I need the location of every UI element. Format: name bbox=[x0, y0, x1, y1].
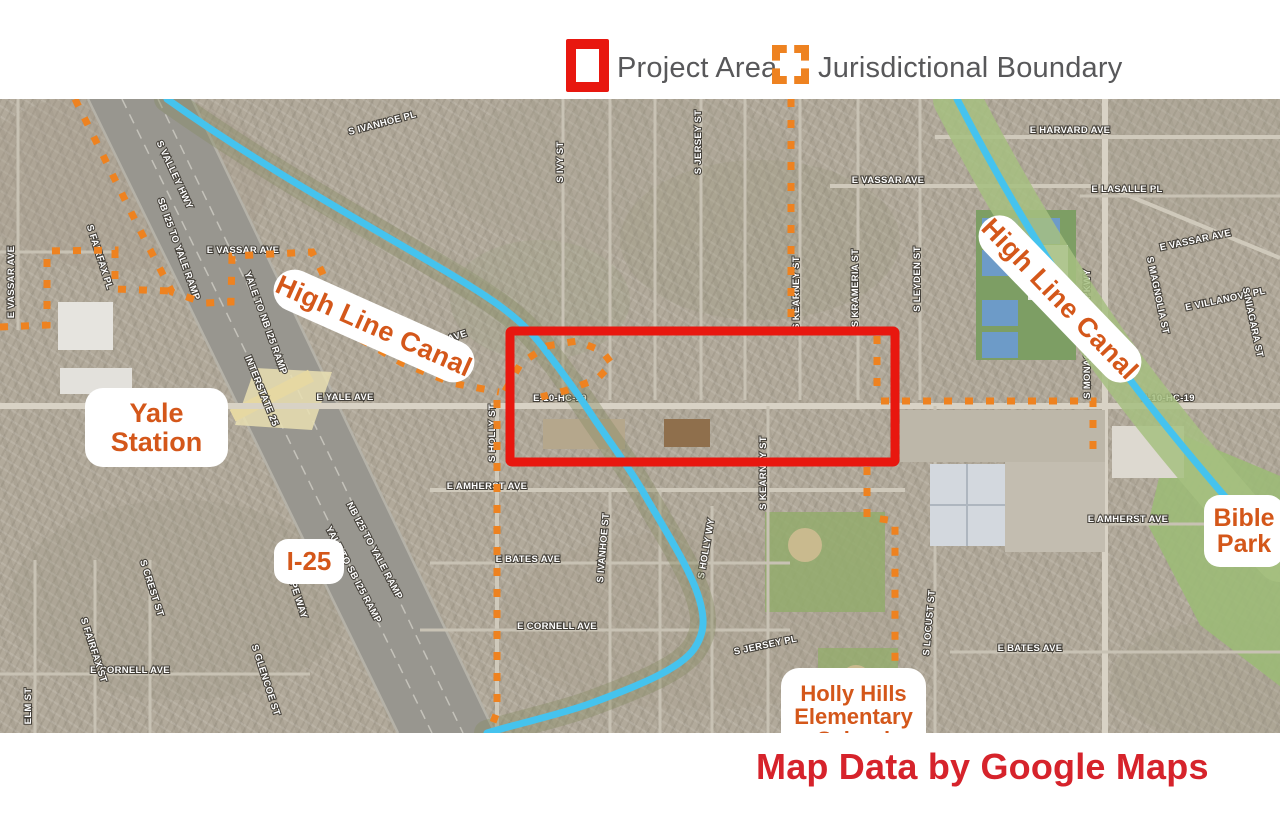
street-label: E LASALLE PL bbox=[1091, 184, 1162, 195]
map-figure: Project Area Jurisdictional Boundary bbox=[0, 0, 1280, 825]
label-text: Holly Hills bbox=[781, 682, 926, 705]
street-label: E CORNELL AVE bbox=[517, 621, 597, 632]
jurisdictional-boundary-swatch-icon bbox=[772, 45, 809, 84]
legend-label-jurisdictional-boundary: Jurisdictional Boundary bbox=[818, 52, 1122, 85]
label-text: Park bbox=[1204, 531, 1280, 558]
street-label: E BATES AVE bbox=[998, 643, 1063, 654]
label-yale-station: Yale Station bbox=[85, 388, 228, 467]
street-label: S MAGNOLIA ST bbox=[1144, 256, 1171, 336]
street-label: S IVY ST bbox=[555, 141, 566, 182]
street-label: E AMHERST AVE bbox=[447, 481, 528, 492]
legend-label-project-area: Project Area bbox=[617, 52, 777, 85]
street-label: S JERSEY ST bbox=[693, 110, 704, 174]
label-bible-park: Bible Park bbox=[1204, 495, 1280, 567]
street-label: S LEYDEN ST bbox=[912, 246, 923, 312]
label-holly-hills-elementary: Holly Hills Elementary School bbox=[781, 668, 926, 733]
map-credit: Map Data by Google Maps bbox=[756, 746, 1209, 788]
label-text: Bible bbox=[1204, 505, 1280, 532]
street-label: ELM ST bbox=[23, 688, 34, 725]
label-text: School bbox=[781, 728, 926, 733]
street-label: E YALE AVE bbox=[316, 392, 373, 403]
street-label: E HARVARD AVE bbox=[1030, 125, 1111, 136]
legend: Project Area Jurisdictional Boundary bbox=[0, 0, 1280, 99]
street-label: S IVANHOE PL bbox=[347, 109, 417, 138]
street-label: E VASSAR AVE bbox=[6, 246, 17, 319]
baseball-diamond bbox=[788, 528, 822, 562]
label-text: Elementary bbox=[781, 705, 926, 728]
street-label: E VASSAR AVE bbox=[1159, 228, 1232, 254]
street-label: S KRAMERIA ST bbox=[850, 249, 861, 328]
street-label: E BATES AVE bbox=[496, 554, 561, 565]
street-label: E AMHERST AVE bbox=[1088, 514, 1169, 525]
project-area-swatch-icon bbox=[566, 39, 609, 92]
street-label: S KEARNEY ST bbox=[758, 436, 769, 510]
label-text: I-25 bbox=[274, 548, 344, 576]
street-label: E VASSAR AVE bbox=[852, 175, 925, 186]
label-i25: I-25 bbox=[274, 539, 344, 584]
street-label: S HOLLY ST bbox=[487, 404, 498, 462]
label-text: Station bbox=[85, 428, 228, 457]
label-text: Yale bbox=[85, 399, 228, 428]
satellite-map: S IVANHOE PLS IVY STS JERSEY STE VASSAR … bbox=[0, 99, 1280, 733]
